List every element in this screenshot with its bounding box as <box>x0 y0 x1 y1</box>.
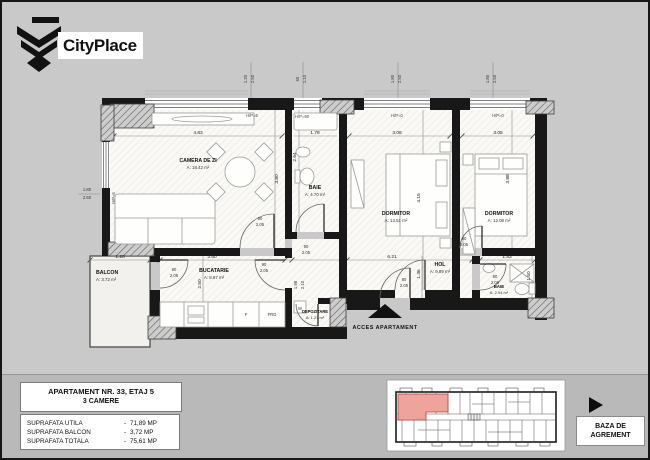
dim-dep-a: 1.98 <box>293 280 298 289</box>
hp-label-baie1: H/P=90 <box>295 114 310 119</box>
room-area-baie1: A: 4.70 m² <box>305 192 326 197</box>
room-name-baie1: BAIE <box>309 185 322 191</box>
area-value: 71,89 MP <box>130 419 172 428</box>
window-tag-4a: 1.80 <box>485 74 490 83</box>
agrement-line1: BAZA DE <box>577 422 644 431</box>
dim-hol-width: 6.21 <box>387 254 397 260</box>
window-tag-2a: 60 <box>295 76 300 81</box>
room-area-balcon: A: 3.72 m² <box>96 277 117 282</box>
door-tag-balcony-h: 2.06 <box>170 273 179 278</box>
dim-living-height: 3.80 <box>274 174 280 184</box>
brand-logo-text: CityPlace <box>58 32 143 59</box>
area-value: 75,61 MP <box>130 437 172 446</box>
room-area-bucatarie: A: 8.97 m² <box>204 275 225 280</box>
room-area-depozitare: A: 1.27 m² <box>306 315 325 320</box>
hp-label-living: H/P=5 <box>246 113 258 118</box>
apartment-title: APARTAMENT NR. 33, ETAJ 5 <box>21 387 181 396</box>
door-tag-baie2-w: 80 <box>493 274 498 279</box>
area-label: SUPRAFATA BALCON <box>27 428 120 437</box>
door-tag-living-w: 90 <box>258 216 263 221</box>
sofa <box>115 194 215 244</box>
stove-label: F <box>245 312 248 317</box>
dim-baie1-height: 2.64 <box>292 152 298 162</box>
dim-baie1-width: 1.78 <box>310 130 320 136</box>
dim-dorm1-width: 3.08 <box>392 130 402 136</box>
room-name-dormitor1: DORMITOR <box>382 211 410 217</box>
hp-label-dorm1: H/P=0 <box>391 113 403 118</box>
page: CityPlace APARTAMENT NR. 33, ETAJ 5 3 CA… <box>0 0 650 460</box>
dim-dorm2-height: 3.88 <box>505 174 511 184</box>
baza-de-agrement-box: BAZA DE AGREMENT <box>576 416 645 446</box>
door-tag-baie2-h: 2.05 <box>491 280 500 285</box>
room-area-camera-de-zi: A: 18.42 m² <box>187 165 210 170</box>
dim-dorm2-width: 3.05 <box>493 130 503 136</box>
table-row: SUPRAFATA TOTALA - 75,61 MP <box>27 437 172 446</box>
table-row: SUPRAFATA UTILA - 71,89 MP <box>27 419 172 428</box>
room-name-bucatarie: BUCATARIE <box>199 268 229 274</box>
door-tag-baie1-h: 2.05 <box>302 250 311 255</box>
washer-label: W <box>298 306 302 311</box>
door-tag-dorm1-w: 80 <box>402 277 407 282</box>
dim-bucatarie-width: 3.60 <box>207 254 217 260</box>
room-name-camera-de-zi: CAMERA DE ZI <box>179 158 217 164</box>
dim-baie2-height: 1.60 <box>526 271 532 281</box>
window-tag-1a: 1.20 <box>243 74 248 83</box>
window-tag-3a: 1.80 <box>390 74 395 83</box>
door-tag-living-h: 2.05 <box>256 222 265 227</box>
dim-dep-b: 2.10 <box>300 280 305 289</box>
door-tag-kitchen-h: 2.05 <box>260 268 269 273</box>
dim-balcon-width: 1.20 <box>115 254 125 260</box>
apartment-subtitle: 3 CAMERE <box>21 398 181 405</box>
dim-living-width: 4.83 <box>193 130 203 136</box>
area-label: SUPRAFATA UTILA <box>27 419 120 428</box>
door-tag-balcony-w: 90 <box>172 267 177 272</box>
window-tag-3b: 2.50 <box>397 74 402 83</box>
door-tag-baie1-w: 90 <box>304 244 309 249</box>
window-tag-left-a: 1.80 <box>83 187 92 192</box>
window-tag-4b: 2.50 <box>492 74 497 83</box>
room-area-dormitor1: A: 13.51 m² <box>385 218 408 223</box>
door-tag-dorm1-h: 2.05 <box>400 283 409 288</box>
door-tag-dorm2-h: 2.05 <box>460 242 469 247</box>
window-tag-1b: 2.50 <box>250 74 255 83</box>
fridge-label: FRG <box>268 312 277 317</box>
area-value: 3,72 MP <box>130 428 172 437</box>
room-name-balcon: BALCON <box>96 270 118 276</box>
agrement-arrow-icon <box>589 397 603 413</box>
room-area-hol: A: 9.89 m² <box>430 269 451 274</box>
door-tag-kitchen-w: 90 <box>262 262 267 267</box>
apartment-title-block: APARTAMENT NR. 33, ETAJ 5 3 CAMERE <box>20 382 182 412</box>
dash: - <box>120 437 130 446</box>
door-tag-dorm2-w: 90 <box>462 236 467 241</box>
dim-bucatarie-height: 2.50 <box>197 279 203 289</box>
room-name-hol: HOL <box>435 262 447 268</box>
window-tag-left-b: 2.50 <box>83 195 92 200</box>
dash: - <box>120 428 130 437</box>
dim-dorm1-height: 4.15 <box>416 193 422 203</box>
dim-baie2-width: 1.83 <box>502 254 512 260</box>
dim-hol-height: 1.36 <box>416 269 422 279</box>
window-tag-2b: 1.10 <box>302 74 307 83</box>
brand-logo-icon <box>17 17 61 72</box>
areas-table: SUPRAFATA UTILA - 71,89 MP SUPRAFATA BAL… <box>20 414 180 450</box>
access-label: ACCES APARTAMENT <box>352 325 417 331</box>
key-plan <box>387 380 565 451</box>
dash: - <box>120 419 130 428</box>
room-area-dormitor2: A: 12.08 m² <box>488 218 511 223</box>
agrement-line2: AGREMENT <box>577 431 644 440</box>
table-row: SUPRAFATA BALCON - 3,72 MP <box>27 428 172 437</box>
area-label: SUPRAFATA TOTALA <box>27 437 120 446</box>
kitchen-counter <box>160 302 285 327</box>
room-name-dormitor2: DORMITOR <box>485 211 513 217</box>
room-area-baie2: A: 2.94 m² <box>490 290 509 295</box>
hp-label-side: H/P=5 <box>111 191 116 203</box>
room-name-depozitare: DEPOZITARE <box>302 309 328 314</box>
hp-label-dorm2: H/P=0 <box>492 113 504 118</box>
